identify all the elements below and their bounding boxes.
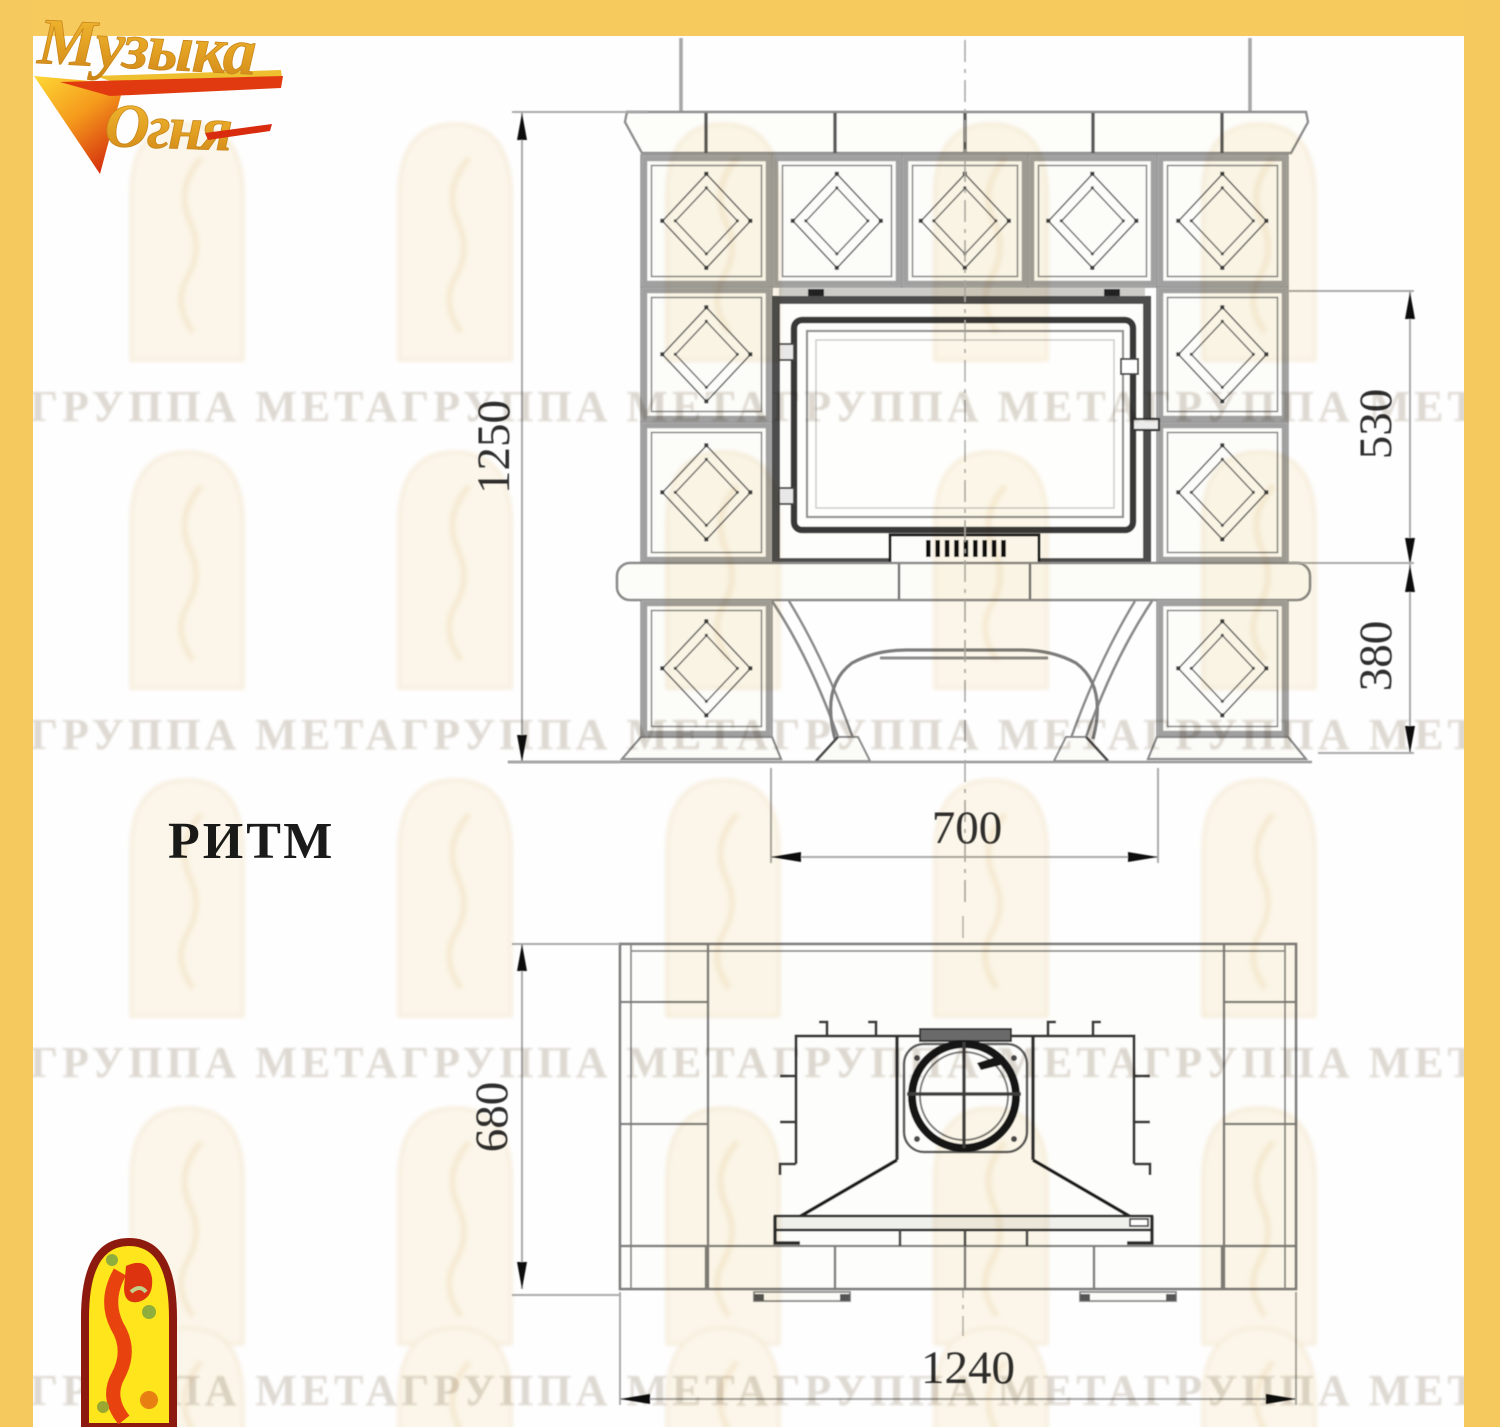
svg-text:ГРУППА МЕТАГРУППА МЕТАГРУППА М: ГРУППА МЕТАГРУППА МЕТАГРУППА МЕТАГРУППА … <box>30 710 1500 759</box>
svg-text:ГРУППА МЕТАГРУППА МЕТАГРУППА М: ГРУППА МЕТАГРУППА МЕТАГРУППА МЕТАГРУППА … <box>30 1038 1500 1087</box>
svg-text:ГРУППА МЕТАГРУППА МЕТАГРУППА М: ГРУППА МЕТАГРУППА МЕТАГРУППА МЕТАГРУППА … <box>30 382 1500 431</box>
svg-text:ГРУППА МЕТАГРУППА МЕТАГРУППА М: ГРУППА МЕТАГРУППА МЕТАГРУППА МЕТАГРУППА … <box>30 1366 1500 1415</box>
svg-text:Огня: Огня <box>104 92 232 164</box>
svg-text:380: 380 <box>1350 621 1402 692</box>
svg-text:Музыка: Музыка <box>35 5 257 89</box>
